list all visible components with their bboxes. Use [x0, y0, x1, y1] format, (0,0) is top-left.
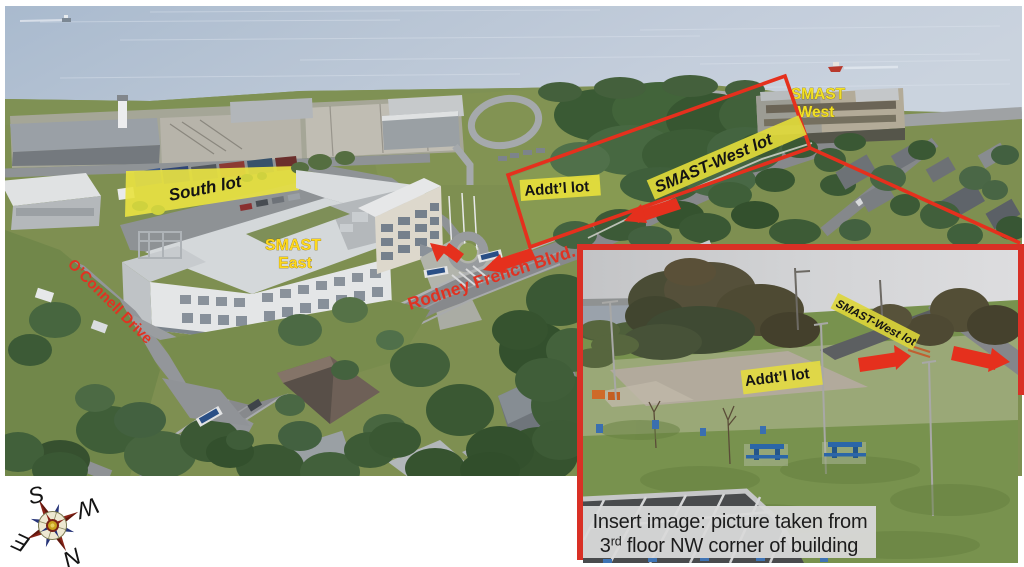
svg-text:East: East [278, 255, 312, 272]
svg-text:SMAST: SMAST [265, 237, 321, 254]
svg-text:SMAST: SMAST [791, 86, 846, 103]
svg-text:3rd floor NW corner of buildin: 3rd floor NW corner of building [600, 535, 858, 558]
svg-text:Insert image: picture taken fr: Insert image: picture taken from [593, 511, 868, 533]
svg-text:West: West [798, 104, 835, 121]
